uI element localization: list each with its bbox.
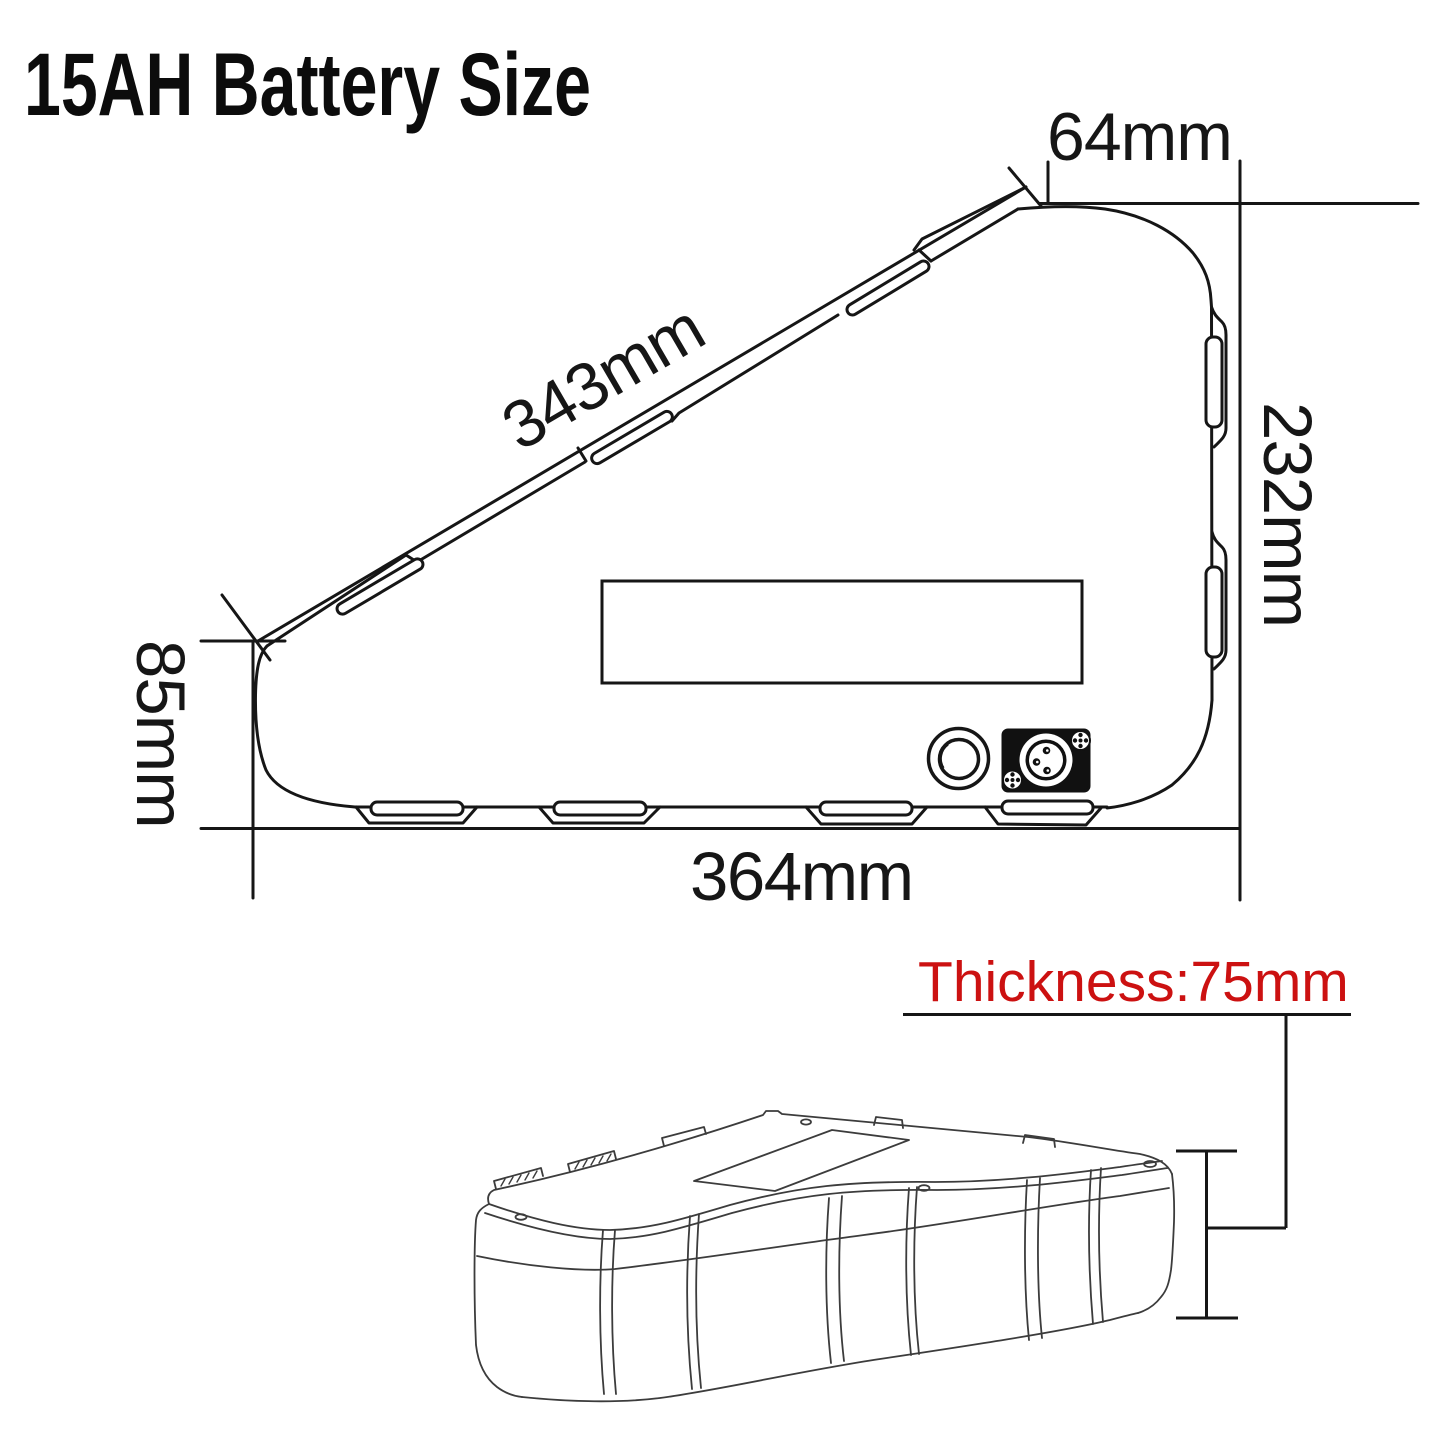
svg-text:232mm: 232mm [1249,402,1326,627]
svg-text:Thickness:75mm: Thickness:75mm [918,950,1349,1014]
svg-text:15AH Battery Size: 15AH Battery Size [24,34,591,134]
svg-text:364mm: 364mm [690,838,913,915]
svg-text:85mm: 85mm [122,640,199,828]
svg-text:343mm: 343mm [490,290,717,465]
svg-text:64mm: 64mm [1047,99,1232,175]
